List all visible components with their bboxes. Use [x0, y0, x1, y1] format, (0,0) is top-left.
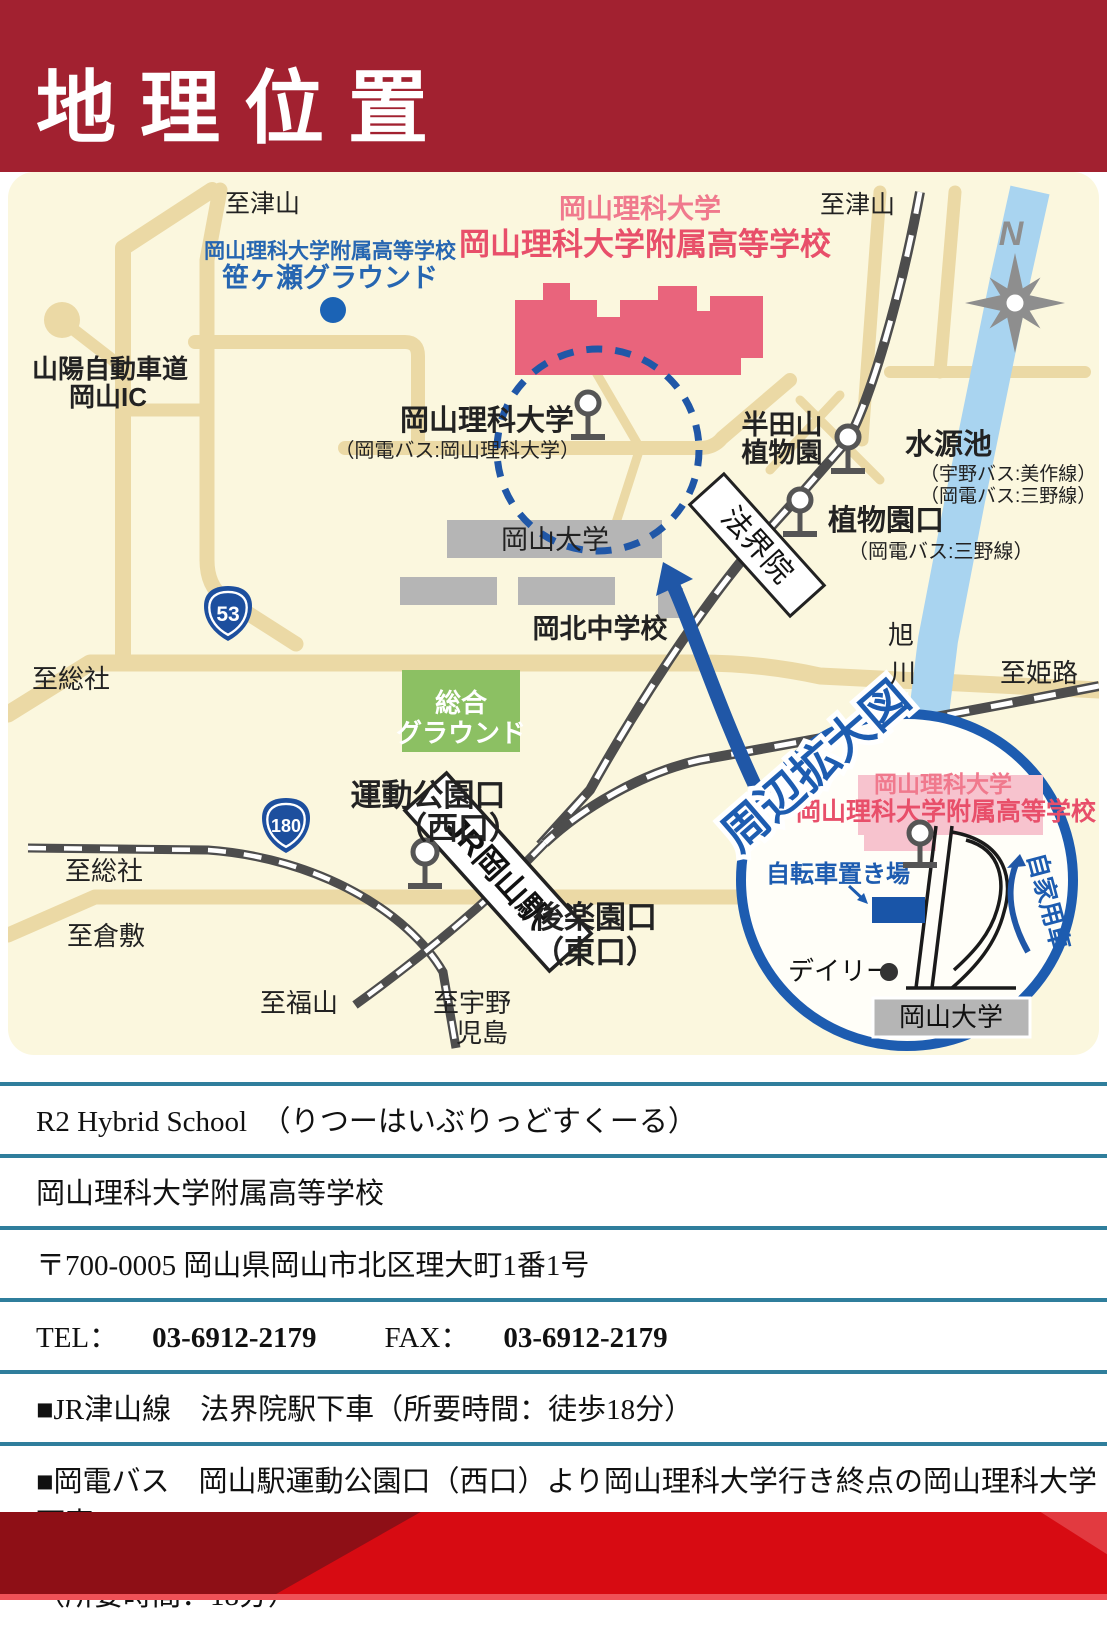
jr-access-text: ■JR津山線 法界院駅下車（所要時間：徒歩18分） — [36, 1394, 693, 1426]
page-header: 地理位置 — [0, 0, 1107, 172]
label-to-fukuyama: 至福山 — [260, 988, 338, 1018]
label-ridai-univ-pink: 岡山理科大学 — [559, 193, 721, 224]
compass-north-label: N — [999, 215, 1025, 253]
info-row-jr-access: ■JR津山線 法界院駅下車（所要時間：徒歩18分） — [0, 1370, 1107, 1442]
label-suigenchi-note1: （宇野バス:美作線） — [920, 463, 1096, 485]
label-shokubutsuen-note: （岡電バス:三野線） — [848, 540, 1034, 563]
label-kojima: 児島 — [456, 1018, 508, 1048]
inset-okayama-univ-label: 岡山大学 — [899, 1002, 1003, 1032]
label-to-himeji: 至姫路 — [1000, 658, 1078, 688]
inset-bicycle-label: 自転車置き場 — [766, 860, 910, 888]
school-address: 〒700-0005 岡山県岡山市北区理大町1番1号 — [36, 1250, 589, 1282]
label-shokubutsuen-guchi: 植物園口 — [828, 504, 944, 537]
label-ridai-bus-note: （岡電バス:岡山理科大学） — [334, 439, 580, 462]
label-to-uno: 至宇野 — [433, 988, 511, 1018]
label-higashi-guchi: （東口） — [533, 935, 657, 970]
label-to-sosha-2: 至総社 — [65, 856, 143, 886]
label-sogo-1: 総合 — [435, 688, 488, 718]
info-row-school-name-en: R2 Hybrid School （りつーはいぶりっどすくーる） — [0, 1082, 1107, 1154]
inset-daily-label: デイリー — [788, 956, 892, 986]
info-row-school-name-jp: 岡山理科大学附属高等学校 — [0, 1154, 1107, 1226]
gray-building-2 — [518, 577, 615, 605]
info-row-address: 〒700-0005 岡山県岡山市北区理大町1番1号 — [0, 1226, 1107, 1298]
label-nishi-guchi: （西口） — [396, 811, 520, 846]
fax-value: 03-6912-2179 — [503, 1322, 667, 1354]
label-sasagase-1: 岡山理科大学附属高等学校 — [204, 239, 457, 263]
label-kawa: 川 — [890, 658, 916, 688]
label-handayama-1: 半田山 — [742, 410, 823, 440]
inset-fuzoku-label: 岡山理科大学附属高等学校 — [796, 797, 1097, 826]
access-map: 法界院 JR岡山駅 岡山理科大学 岡山理科大学附属高等学校 自転車置き場 自家用… — [8, 172, 1099, 1055]
label-fuzoku-high-red: 岡山理科大学附属高等学校 — [459, 227, 831, 262]
sasagase-ground-dot — [320, 297, 346, 323]
label-to-tsuyama-right: 至津山 — [820, 191, 895, 219]
tel-value: 03-6912-2179 — [152, 1322, 316, 1354]
inset-bicycle-parking-area — [872, 897, 925, 923]
label-suigenchi: 水源池 — [905, 428, 992, 461]
label-sanyo-expwy: 山陽自動車道 — [32, 354, 188, 384]
label-to-sosha-1: 至総社 — [32, 664, 110, 694]
info-row-tel-fax: TEL：03-6912-2179FAX：03-6912-2179 — [0, 1298, 1107, 1370]
school-name-jp: 岡山理科大学附属高等学校 — [36, 1178, 384, 1210]
label-asahi: 旭 — [888, 620, 914, 650]
label-to-kurashiki: 至倉敷 — [67, 921, 145, 951]
label-kohoku-jhs: 岡北中学校 — [533, 613, 668, 644]
label-ridai-bus-stop: 岡山理科大学 — [400, 403, 574, 437]
tel-label: TEL： — [36, 1322, 118, 1354]
page-footer — [0, 1512, 1107, 1600]
label-handayama-2: 植物園 — [742, 437, 823, 468]
label-sasagase-2: 笹ヶ瀬グラウンド — [222, 262, 438, 293]
label-okayama-univ: 岡山大学 — [501, 525, 609, 555]
fax-label: FAX： — [384, 1322, 469, 1354]
label-to-tsuyama-left: 至津山 — [225, 190, 300, 218]
inset-daily-dot — [880, 963, 898, 981]
label-sogo-2: グラウンド — [396, 718, 526, 748]
footer-dark-shape — [0, 1512, 1107, 1600]
inset-ridai-univ-label: 岡山理科大学 — [874, 771, 1012, 797]
label-undo-koen-guchi: 運動公園口 — [351, 778, 506, 813]
route-180-number: 180 — [271, 816, 301, 836]
route-53-number: 53 — [216, 603, 239, 626]
ic-symbol — [44, 302, 80, 338]
label-suigenchi-note2: （岡電バス:三野線） — [920, 485, 1096, 507]
page-title: 地理位置 — [36, 44, 452, 160]
label-okayama-ic: 岡山IC — [69, 382, 147, 412]
gray-building-1 — [400, 577, 497, 605]
label-korakuen-guchi: 後楽園口 — [533, 900, 657, 935]
footer-bottom-strip — [0, 1594, 1107, 1600]
school-name-en: R2 Hybrid School （りつーはいぶりっどすくーる） — [36, 1106, 697, 1138]
access-map-svg: 法界院 JR岡山駅 岡山理科大学 岡山理科大学附属高等学校 自転車置き場 自家用… — [8, 172, 1099, 1055]
